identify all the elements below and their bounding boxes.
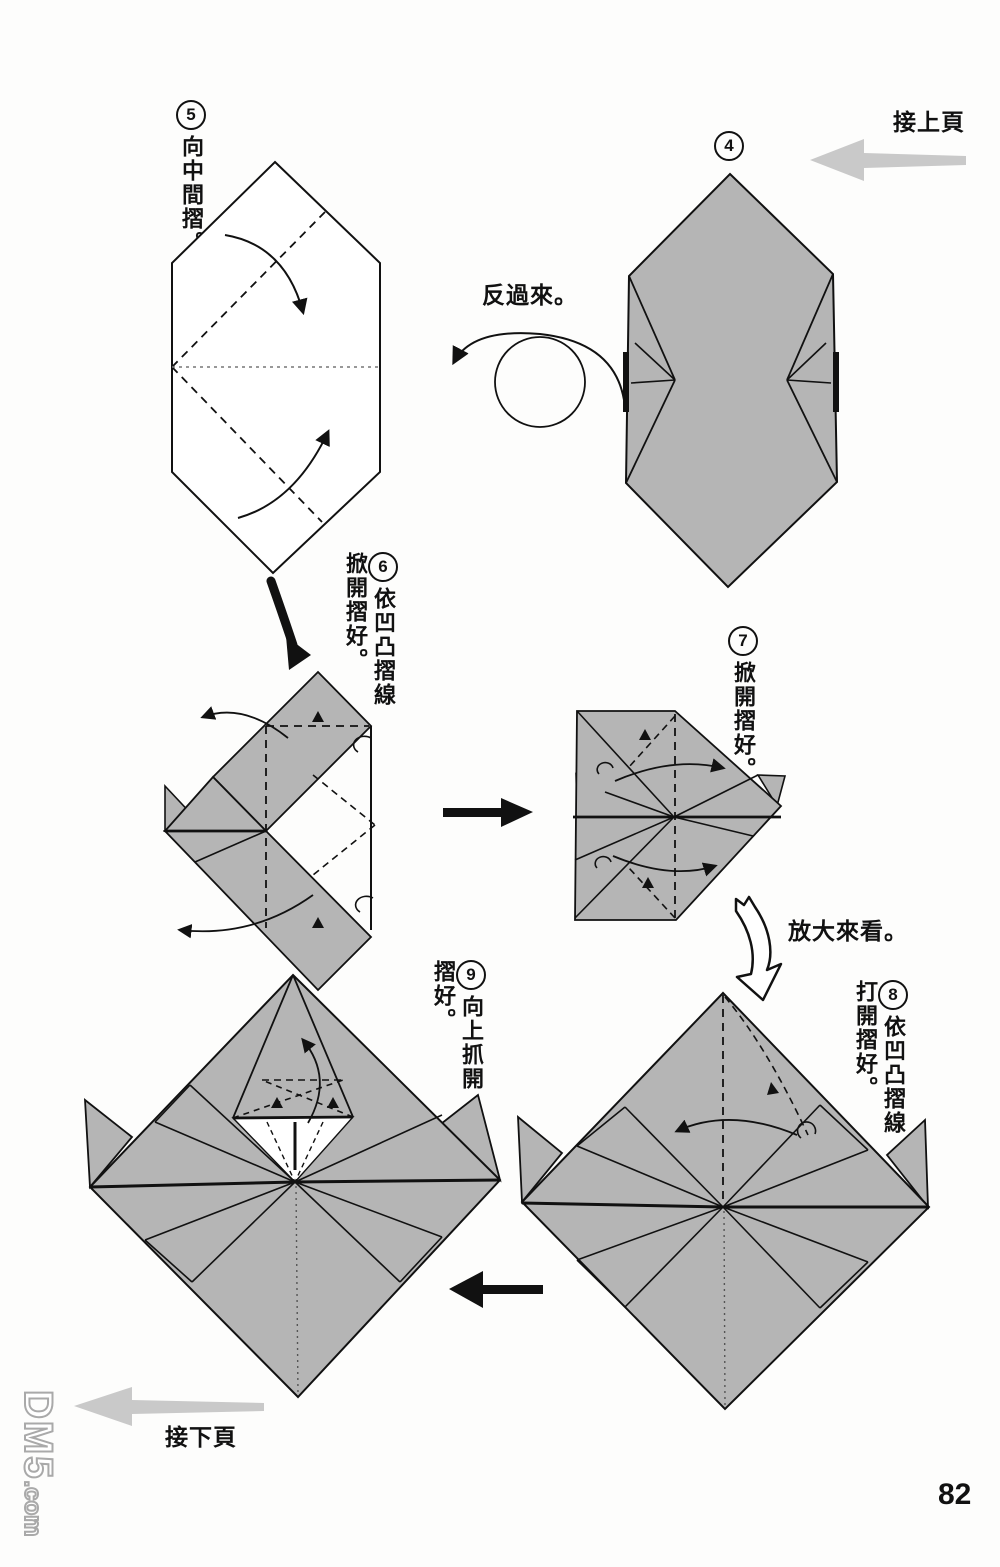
next-step-left-arrow-icon	[443, 1263, 548, 1315]
watermark-main: DM5	[16, 1390, 60, 1480]
next-page-label: 接下頁	[165, 1418, 237, 1452]
step9-diagram	[68, 948, 523, 1413]
step7-number-badge: 7	[728, 626, 758, 656]
step5-diagram	[150, 140, 400, 590]
step8-diagram	[505, 985, 945, 1425]
step4-number-badge: 4	[714, 131, 744, 161]
step5-number-badge: 5	[176, 100, 206, 130]
step6-number-badge: 6	[368, 552, 398, 582]
next-step-down-arrow-icon	[243, 573, 323, 673]
watermark: DM5.com	[18, 1390, 58, 1536]
watermark-sub: .com	[19, 1480, 46, 1536]
turn-over-arrow-icon	[440, 300, 640, 445]
origami-instruction-page: { "page": { "number": "82", "watermark":…	[0, 0, 1000, 1567]
page-number: 82	[938, 1478, 971, 1512]
step4-diagram	[610, 160, 850, 592]
next-step-right-arrow-icon	[437, 788, 537, 836]
